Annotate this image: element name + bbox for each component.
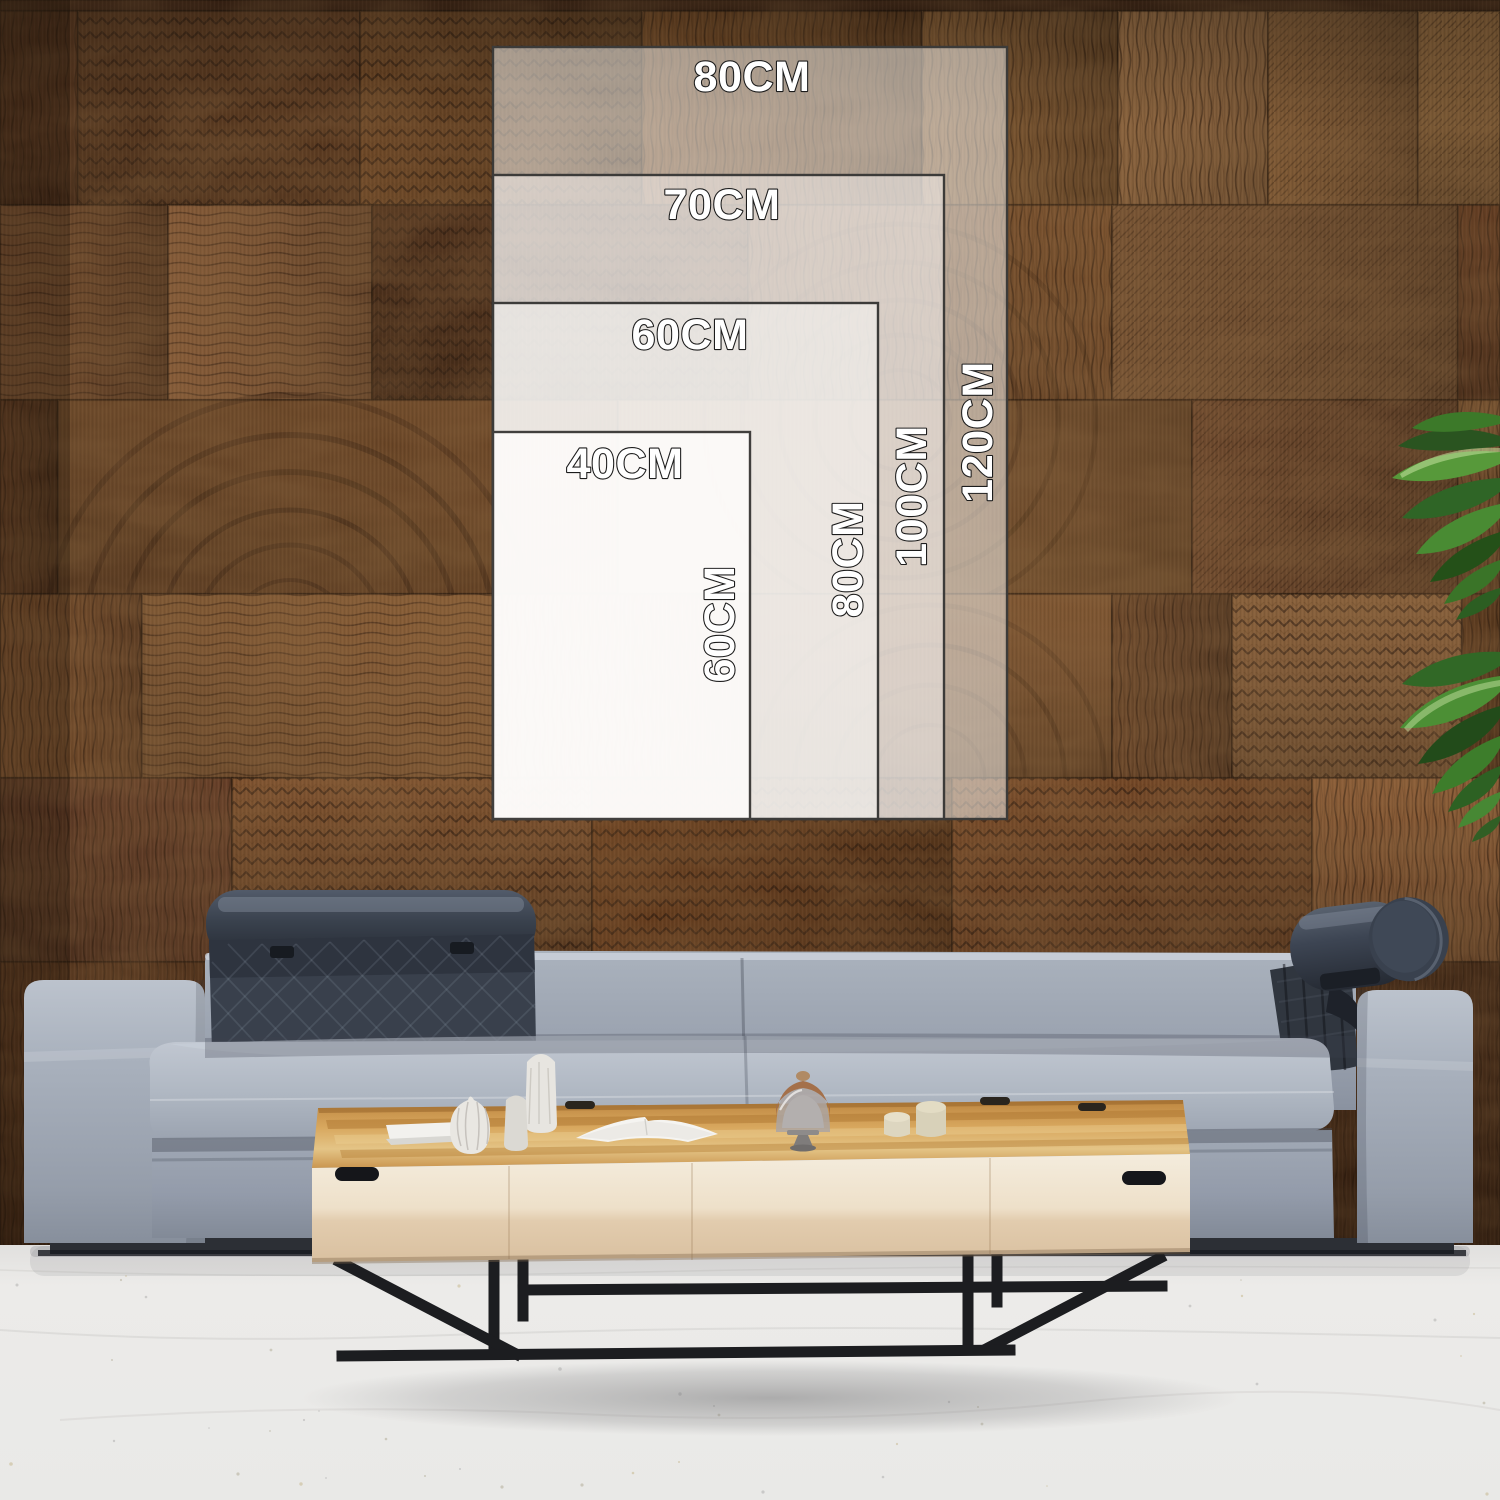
svg-text:70CM: 70CM [663, 181, 780, 229]
svg-text:40CM: 40CM [566, 440, 683, 488]
svg-text:60CM: 60CM [631, 311, 748, 359]
svg-text:100CM: 100CM [888, 425, 936, 567]
svg-text:80CM: 80CM [824, 500, 872, 617]
svg-text:80CM: 80CM [693, 53, 810, 101]
svg-text:60CM: 60CM [696, 565, 744, 682]
svg-text:120CM: 120CM [954, 361, 1002, 503]
